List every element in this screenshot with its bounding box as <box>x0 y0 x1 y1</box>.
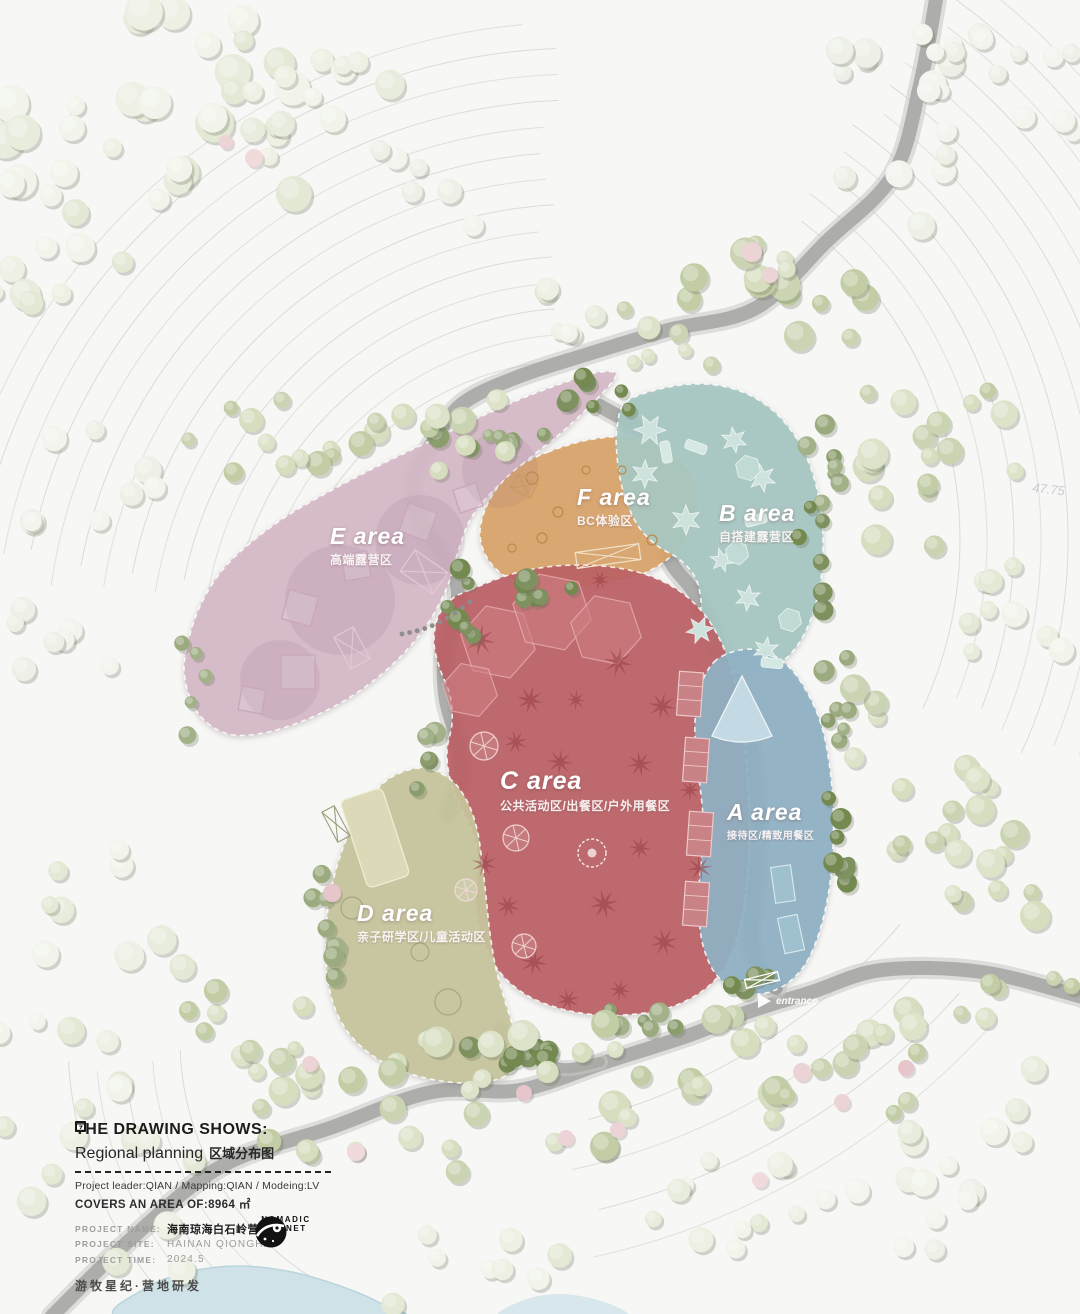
zone-a-shape <box>695 649 834 994</box>
planet-goat-icon <box>253 1215 289 1251</box>
project-name-row: PROJECT NAME: 海南琼海白石岭营地 <box>75 1221 415 1237</box>
elevation-label: 47.75 <box>1032 480 1067 498</box>
entrance-label: entrance <box>776 996 818 1007</box>
nomadic-planet-logo: NOMADIC PLANET <box>253 1215 319 1233</box>
studio-footer: 游牧星纪·营地研发 <box>75 1277 415 1294</box>
project-site-row: PROJECT SITE: HAINAN QIONGHAI <box>75 1237 415 1253</box>
divider <box>75 1171 333 1173</box>
area-line: COVERS AN AREA OF:8964 ㎡ <box>75 1196 415 1212</box>
map-drawing: entrance 47.75 <box>0 0 1080 1314</box>
project-time-row: PROJECT TIME: 2024.5 <box>75 1252 415 1268</box>
title-block: THE DRAWING SHOWS: Regional planning区域分布… <box>75 1121 415 1294</box>
credits-line: Project leader:QIAN / Mapping:QIAN / Mod… <box>75 1180 415 1192</box>
drawing-heading: THE DRAWING SHOWS: <box>75 1121 415 1139</box>
drawing-subtitle: Regional planning区域分布图 <box>75 1145 415 1163</box>
calendar-icon <box>75 1121 86 1132</box>
site-plan: entrance 47.75 E area 高端露营区 F area BC体验区… <box>0 0 1080 1314</box>
project-rows: PROJECT NAME: 海南琼海白石岭营地 PROJECT SITE: HA… <box>75 1221 415 1268</box>
